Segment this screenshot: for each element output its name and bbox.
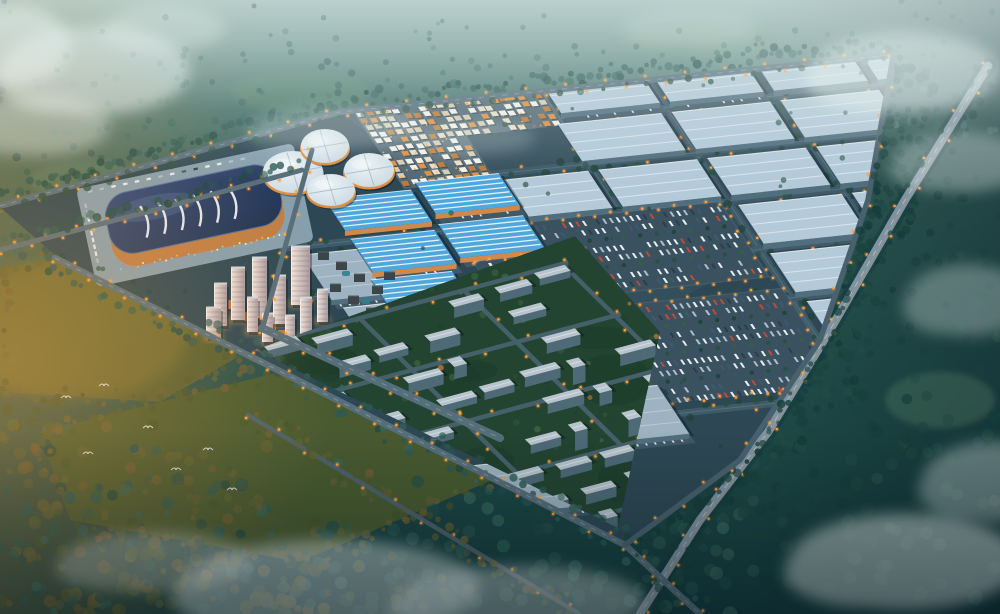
rendering-canvas bbox=[0, 0, 1000, 614]
aerial-rendering-logistics-park bbox=[0, 0, 1000, 614]
